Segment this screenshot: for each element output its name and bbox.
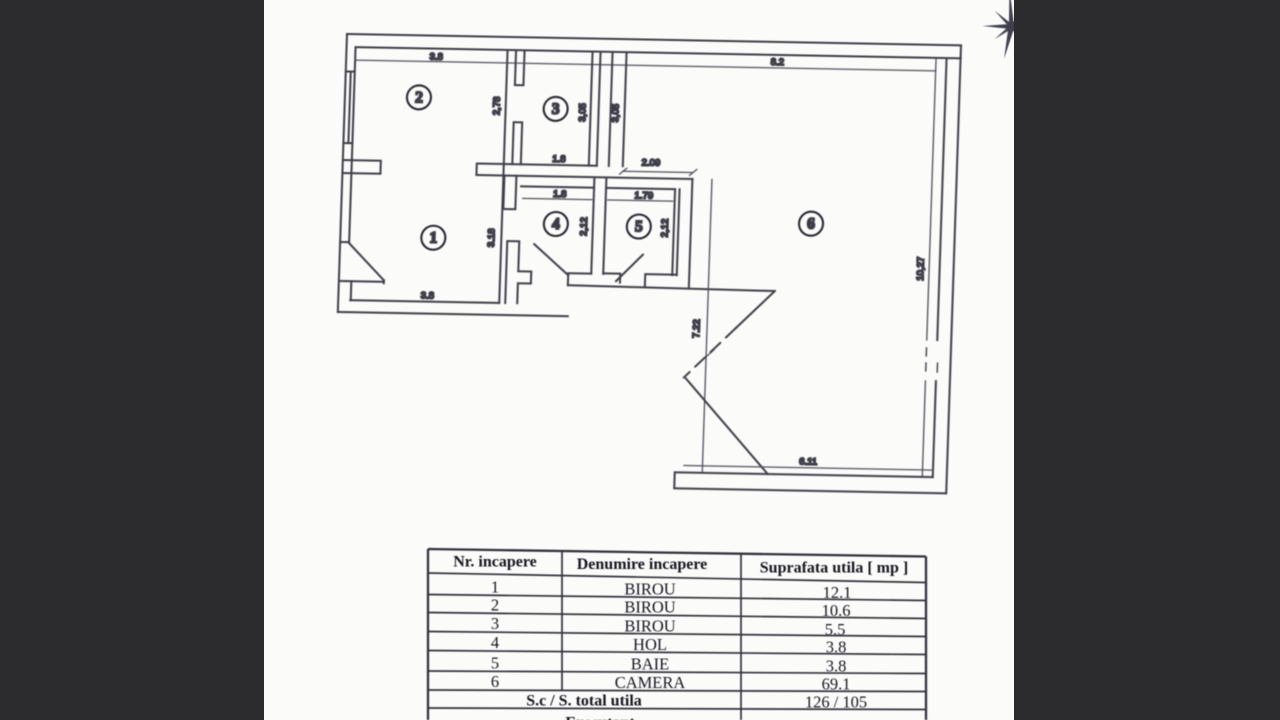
svg-text:126 / 105: 126 / 105	[805, 693, 867, 712]
svg-text:BIROU: BIROU	[624, 617, 675, 636]
svg-text:6: 6	[491, 672, 499, 691]
svg-text:2,12: 2,12	[578, 217, 590, 236]
svg-text:BAIE: BAIE	[631, 655, 670, 674]
svg-text:69.1: 69.1	[822, 675, 851, 694]
svg-text:3.8: 3.8	[429, 52, 443, 63]
svg-text:Suprafata utila [ mp ]: Suprafata utila [ mp ]	[760, 560, 908, 577]
svg-text:Denumire incapere: Denumire incapere	[577, 556, 708, 573]
svg-text:4: 4	[491, 633, 499, 652]
svg-text:3,05: 3,05	[577, 103, 589, 122]
svg-text:5: 5	[635, 218, 644, 235]
svg-text:1: 1	[491, 577, 499, 596]
svg-text:1.8: 1.8	[553, 189, 567, 200]
svg-text:1.79: 1.79	[634, 190, 653, 201]
svg-text:3.18: 3.18	[486, 228, 498, 247]
svg-text:2: 2	[415, 89, 424, 106]
svg-text:7.22: 7.22	[691, 319, 703, 338]
svg-text:4: 4	[552, 216, 561, 233]
svg-text:3: 3	[491, 614, 499, 633]
svg-text:HOL: HOL	[633, 635, 667, 654]
svg-text:3,05: 3,05	[610, 104, 622, 123]
svg-text:1.8: 1.8	[552, 154, 566, 165]
svg-text:3.8: 3.8	[826, 657, 847, 676]
svg-text:1: 1	[429, 230, 437, 247]
svg-text:CAMERA: CAMERA	[615, 673, 686, 692]
svg-text:BIROU: BIROU	[624, 598, 675, 617]
svg-text:5.5: 5.5	[825, 620, 846, 639]
svg-text:S.c / S. total utila: S.c / S. total utila	[526, 693, 642, 710]
svg-text:3.8: 3.8	[421, 291, 435, 302]
svg-text:BIROU: BIROU	[624, 580, 675, 599]
svg-text:12.1: 12.1	[823, 583, 852, 602]
svg-text:3: 3	[551, 101, 560, 118]
svg-text:6.11: 6.11	[799, 457, 817, 468]
svg-text:10.6: 10.6	[822, 601, 851, 620]
svg-text:2: 2	[491, 595, 499, 614]
svg-text:2.09: 2.09	[641, 158, 660, 169]
svg-text:10,27: 10,27	[915, 257, 927, 281]
svg-text:8.2: 8.2	[770, 57, 784, 68]
svg-text:Nr. incapere: Nr. incapere	[453, 554, 537, 571]
svg-text:3.8: 3.8	[826, 637, 847, 656]
svg-text:2,78: 2,78	[491, 96, 503, 115]
svg-text:Executant: Executant	[565, 715, 635, 720]
svg-text:2,12: 2,12	[659, 219, 671, 238]
svg-text:5: 5	[491, 653, 499, 672]
svg-text:6: 6	[807, 216, 816, 233]
